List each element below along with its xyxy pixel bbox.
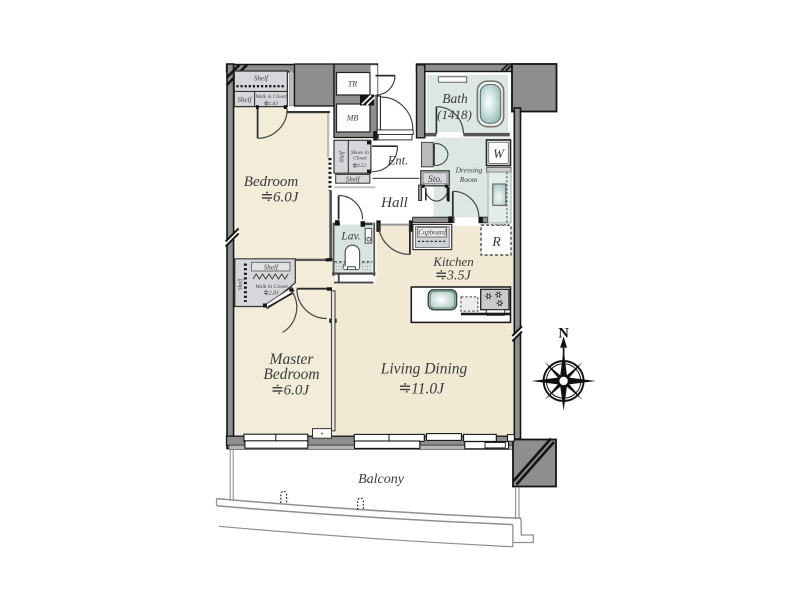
svg-text:Dressing: Dressing xyxy=(455,166,483,175)
svg-text:Sto.: Sto. xyxy=(428,175,443,185)
svg-text:Shelf: Shelf xyxy=(346,176,361,184)
svg-text:11.0J: 11.0J xyxy=(411,380,445,397)
svg-text:Shelf: Shelf xyxy=(254,75,269,83)
svg-text:W: W xyxy=(493,146,505,161)
svg-text:Shelf: Shelf xyxy=(338,150,345,163)
svg-text:0.5J: 0.5J xyxy=(357,163,367,169)
svg-text:Room: Room xyxy=(459,175,478,184)
svg-text:Walk in Closet: Walk in Closet xyxy=(256,94,287,100)
svg-text:Shelf: Shelf xyxy=(237,277,244,290)
svg-text:Ent.: Ent. xyxy=(387,154,408,168)
svg-text:1.8J: 1.8J xyxy=(269,101,279,107)
svg-text:2.8J: 2.8J xyxy=(269,291,279,297)
svg-text:Bedroom: Bedroom xyxy=(244,174,299,190)
svg-text:3.5J: 3.5J xyxy=(446,269,472,284)
svg-text:6.0J: 6.0J xyxy=(273,189,300,205)
svg-text:Shelf: Shelf xyxy=(264,263,279,271)
svg-text:Shelf: Shelf xyxy=(237,96,252,104)
svg-text:Bedroom: Bedroom xyxy=(263,366,319,383)
svg-text:Lav.: Lav. xyxy=(340,231,360,243)
svg-text:Closet: Closet xyxy=(353,156,367,162)
svg-text:Bath: Bath xyxy=(442,91,468,106)
svg-text:Balcony: Balcony xyxy=(358,472,405,487)
svg-text:(1418): (1418) xyxy=(437,107,472,122)
svg-text:MB: MB xyxy=(346,114,359,123)
svg-text:N: N xyxy=(558,326,569,342)
svg-text:Living Dining: Living Dining xyxy=(380,361,468,378)
svg-text:Cupboard: Cupboard xyxy=(418,229,446,236)
svg-text:Walk in Closet: Walk in Closet xyxy=(255,284,288,290)
svg-text:Kitchen: Kitchen xyxy=(432,254,473,269)
svg-text:R: R xyxy=(491,235,501,250)
svg-text:6.0J: 6.0J xyxy=(284,382,311,398)
svg-text:TR: TR xyxy=(348,80,357,89)
svg-text:Hall: Hall xyxy=(380,195,408,211)
